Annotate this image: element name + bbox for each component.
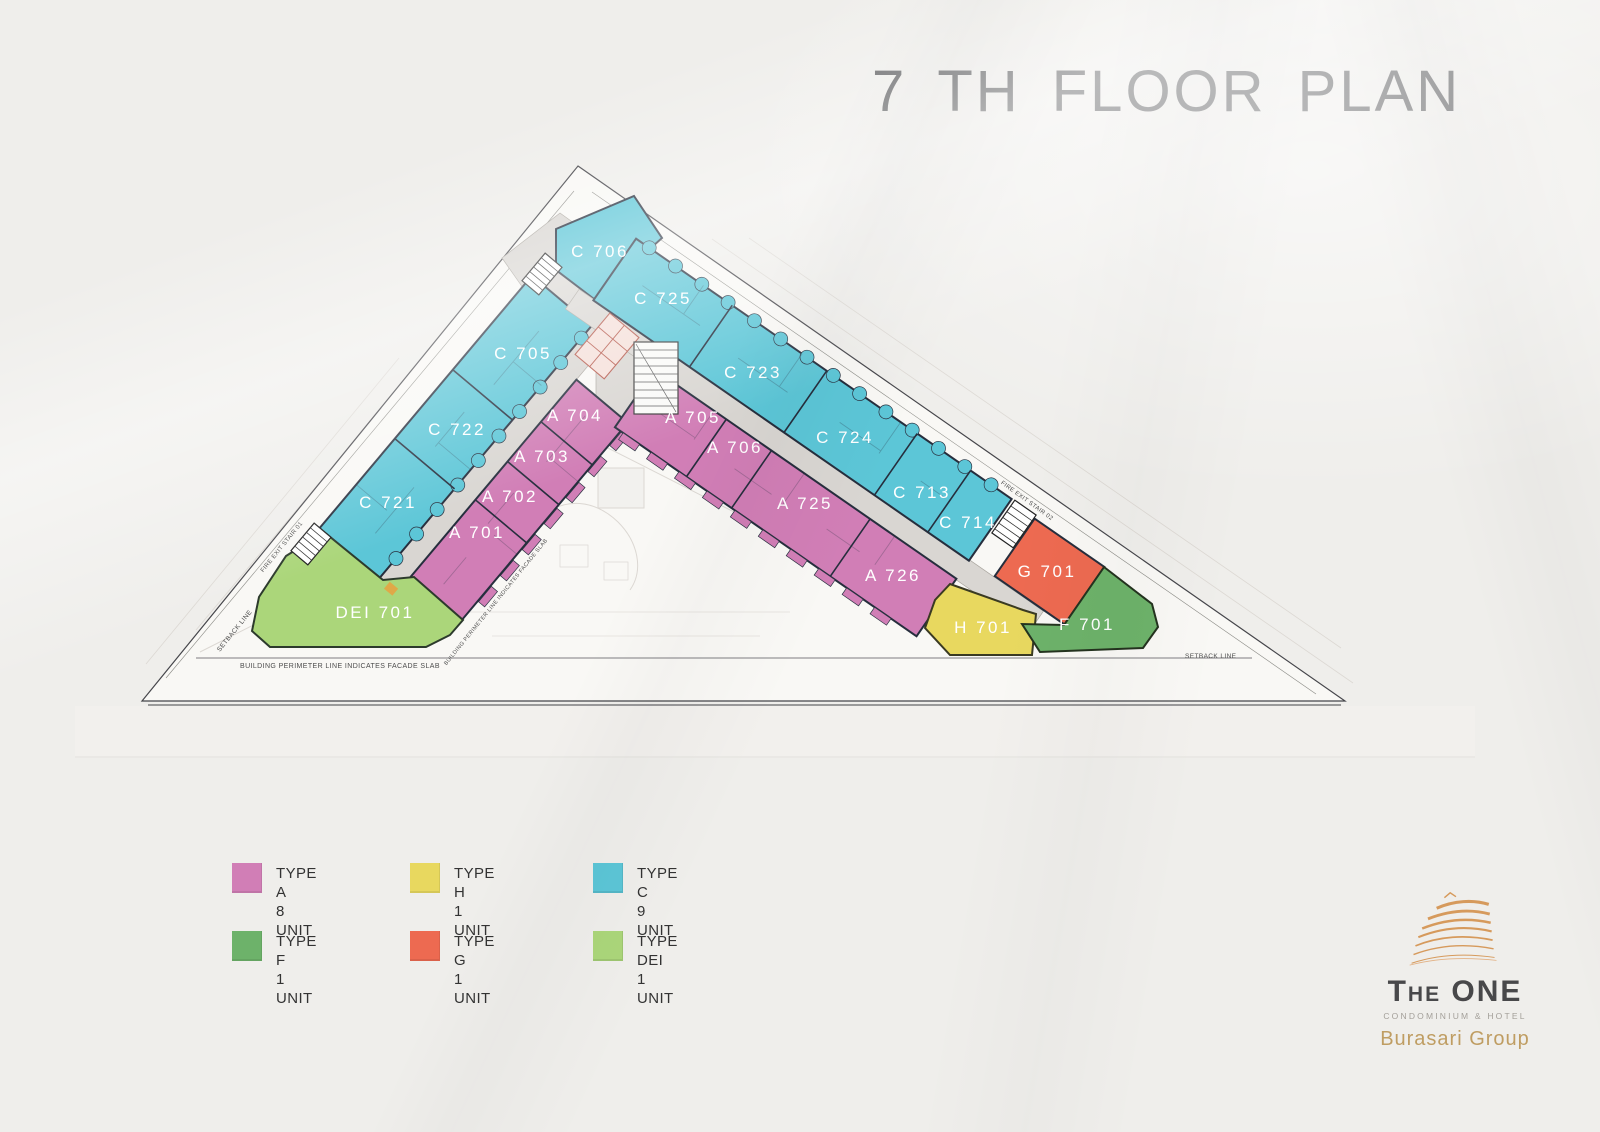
unit-label-c721: C 721 xyxy=(359,493,417,512)
unit-label-c725: C 725 xyxy=(634,289,692,308)
legend-item-type-a: TYPE A8 UNIT xyxy=(232,863,317,940)
unit-label-a704: A 704 xyxy=(547,406,603,425)
unit-label-c724: C 724 xyxy=(816,428,874,447)
legend-count: 1 UNIT xyxy=(637,970,678,1008)
unit-label-c706: C 706 xyxy=(571,242,629,261)
legend-label: TYPE A xyxy=(276,864,317,902)
legend-item-type-c: TYPE C9 UNIT xyxy=(593,863,678,940)
legend-count: 1 UNIT xyxy=(454,970,495,1008)
unit-label-a702: A 702 xyxy=(482,487,538,506)
unit-label-a726: A 726 xyxy=(865,566,921,585)
legend-item-type-f: TYPE F1 UNIT xyxy=(232,931,317,1008)
unit-label-a705: A 705 xyxy=(665,408,721,427)
unit-label-a706: A 706 xyxy=(707,438,763,457)
unit-label-dei701: DEI 701 xyxy=(336,603,415,622)
unit-label-a703: A 703 xyxy=(514,447,570,466)
type-a-color-swatch xyxy=(232,863,262,893)
setback-line-right-label: SETBACK LINE xyxy=(1185,653,1237,660)
legend-item-type-dei: TYPE DEI1 UNIT xyxy=(593,931,678,1008)
legend-item-type-h: TYPE H1 UNIT xyxy=(410,863,495,940)
type-h-color-swatch xyxy=(410,863,440,893)
legend-item-type-g: TYPE G1 UNIT xyxy=(410,931,495,1008)
legend-label: TYPE F xyxy=(276,932,317,970)
unit-label-c705: C 705 xyxy=(494,344,552,363)
brand-logo: The ONE CONDOMINIUM & HOTEL Burasari Gro… xyxy=(1365,888,1545,1051)
the-one-building-icon xyxy=(1400,888,1510,970)
unit-label-c713: C 713 xyxy=(893,483,951,502)
legend-label: TYPE H xyxy=(454,864,495,902)
unit-label-g701: G 701 xyxy=(1018,562,1077,581)
unit-label-c722: C 722 xyxy=(428,420,486,439)
page-title: 7 TH FLOOR PLAN xyxy=(872,58,1472,125)
logo-group-name: Burasari Group xyxy=(1365,1028,1545,1051)
legend-count: 1 UNIT xyxy=(276,970,317,1008)
unit-label-h701: H 701 xyxy=(954,618,1012,637)
logo-name: The ONE xyxy=(1365,975,1545,1009)
unit-label-c723: C 723 xyxy=(724,363,782,382)
type-dei-color-swatch xyxy=(593,931,623,961)
unit-label-a725: A 725 xyxy=(777,494,833,513)
unit-label-f701: F 701 xyxy=(1059,615,1115,634)
main-stair xyxy=(634,342,678,414)
road-band xyxy=(75,706,1475,757)
legend-label: TYPE DEI xyxy=(637,932,678,970)
unit-label-c714: C 714 xyxy=(939,513,997,532)
legend-label: TYPE C xyxy=(637,864,678,902)
type-c-color-swatch xyxy=(593,863,623,893)
type-f-color-swatch xyxy=(232,931,262,961)
perimeter-note-bottom: BUILDING PERIMETER LINE INDICATES FACADE… xyxy=(240,663,440,670)
legend-label: TYPE G xyxy=(454,932,495,970)
unit-label-a701: A 701 xyxy=(449,523,505,542)
logo-tagline: CONDOMINIUM & HOTEL xyxy=(1365,1011,1545,1021)
type-g-color-swatch xyxy=(410,931,440,961)
